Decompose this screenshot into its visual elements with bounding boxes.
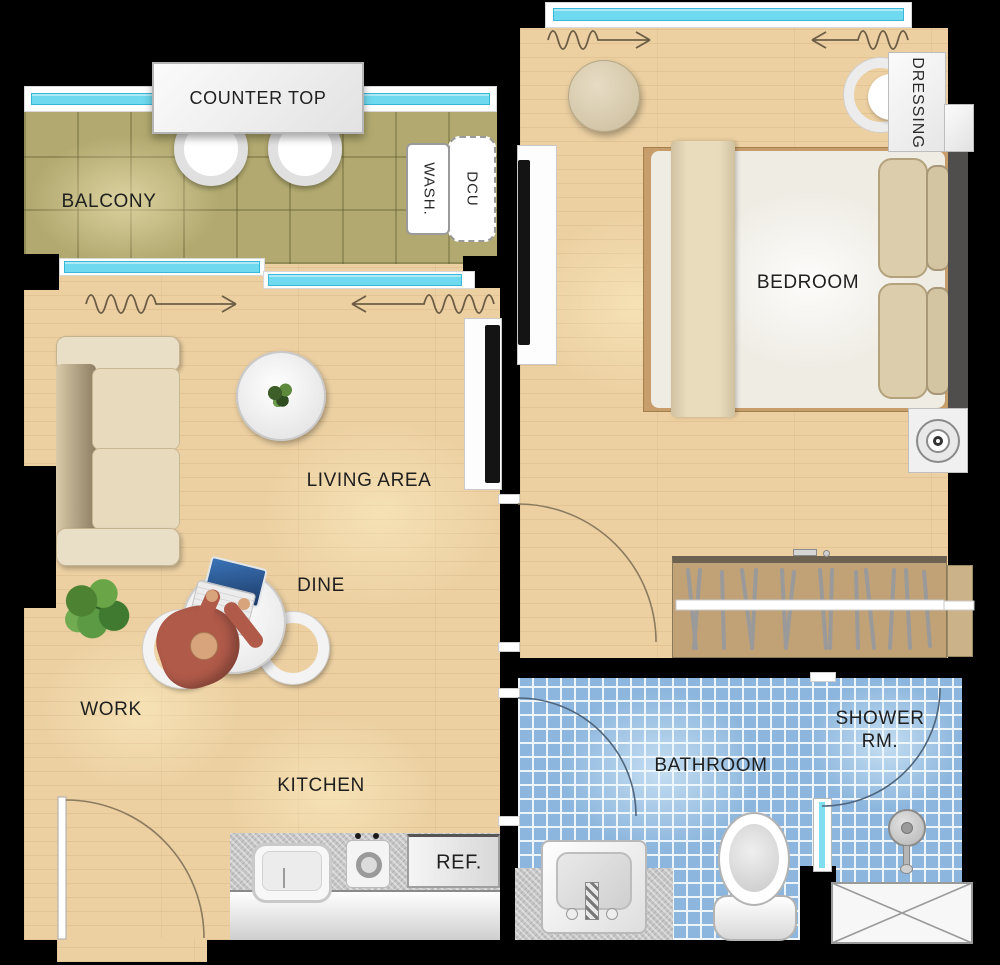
- dine-label: DINE: [297, 575, 345, 597]
- wall-bathroom-top: [518, 658, 1000, 678]
- wall-left-protrusion: [24, 466, 56, 608]
- table-plant: [266, 381, 296, 411]
- bedroom-door-jamb-top: [498, 494, 520, 504]
- bathroom-door-jamb-bottom: [498, 816, 520, 826]
- entrance-threshold: [57, 938, 207, 962]
- dressing-label: DRESSING: [908, 57, 926, 149]
- stove-knob-2: [373, 833, 379, 839]
- stove-knob-1: [355, 833, 361, 839]
- kitchen-label: KITCHEN: [277, 775, 365, 797]
- living-area-label: LIVING AREA: [307, 470, 432, 492]
- washer-dcu-label: DCU: [464, 171, 481, 207]
- work-label: WORK: [80, 699, 142, 721]
- wardrobe-ext: [947, 565, 973, 657]
- sofa-cushion-2: [92, 448, 180, 530]
- person-head: [190, 632, 218, 660]
- kitchen-faucet: [283, 868, 285, 888]
- bedroom-pouf: [568, 60, 640, 132]
- balcony-slider-glass-left: [64, 261, 260, 273]
- vanity-knob-right: [606, 908, 618, 920]
- wall-shower-stub: [800, 866, 836, 942]
- wall-left: [0, 85, 24, 962]
- sofa-cushion-1: [92, 368, 180, 450]
- shower-door-leaf: [810, 672, 836, 682]
- floor-plan: COUNTER TOP WASH. DCU: [0, 0, 1000, 965]
- bed-pillow-4: [926, 287, 950, 395]
- bedroom-window-glass: [553, 8, 904, 21]
- tv-screen-living: [485, 325, 500, 483]
- counter-top: COUNTER TOP: [152, 62, 364, 134]
- balcony-slider-glass-right: [268, 274, 462, 286]
- wall-center-upper: [500, 0, 518, 504]
- person-hand-right: [238, 598, 250, 610]
- sofa-armrest-bottom: [56, 528, 180, 566]
- shower-head-center: [901, 822, 913, 834]
- stove-burner: [356, 852, 382, 878]
- bed-headboard: [948, 147, 968, 412]
- bathroom-label: BATHROOM: [654, 755, 767, 777]
- dressing-cabinet-ext: [944, 104, 974, 152]
- shower-room-label-line1: SHOWER: [835, 708, 924, 730]
- refrigerator-label: REF.: [436, 852, 482, 875]
- bed-pillow-1: [878, 158, 928, 278]
- vanity-knob-left: [566, 908, 578, 920]
- wall-stub-balcony-left: [24, 254, 59, 290]
- shower-partition-glass: [819, 802, 825, 868]
- washer-wash-label: WASH.: [421, 162, 438, 216]
- shower-room-label-line2: RM.: [862, 731, 899, 753]
- toilet-seat: [729, 824, 779, 892]
- work-plant: [60, 575, 132, 649]
- counter-top-label: COUNTER TOP: [190, 88, 327, 109]
- wardrobe: [672, 556, 947, 658]
- bathroom-door-jamb-top: [498, 688, 520, 698]
- bed-pillow-3: [926, 165, 950, 271]
- wardrobe-handle: [793, 549, 817, 556]
- bed-pillow-2: [878, 283, 928, 399]
- person-hand-left: [206, 590, 218, 602]
- sofa-backrest: [56, 364, 96, 536]
- bedroom-label: BEDROOM: [757, 272, 859, 294]
- shower-valve: [900, 864, 913, 874]
- balcony-label: BALCONY: [61, 191, 156, 213]
- vanity-faucet: [585, 882, 599, 920]
- tv-screen-bedroom: [518, 160, 530, 345]
- ac-dot-core: [936, 439, 940, 443]
- wardrobe-knob: [823, 550, 830, 557]
- bedroom-door-jamb-bottom: [498, 642, 520, 652]
- bed-runner: [671, 141, 735, 417]
- kitchen-sink-basin: [262, 851, 322, 891]
